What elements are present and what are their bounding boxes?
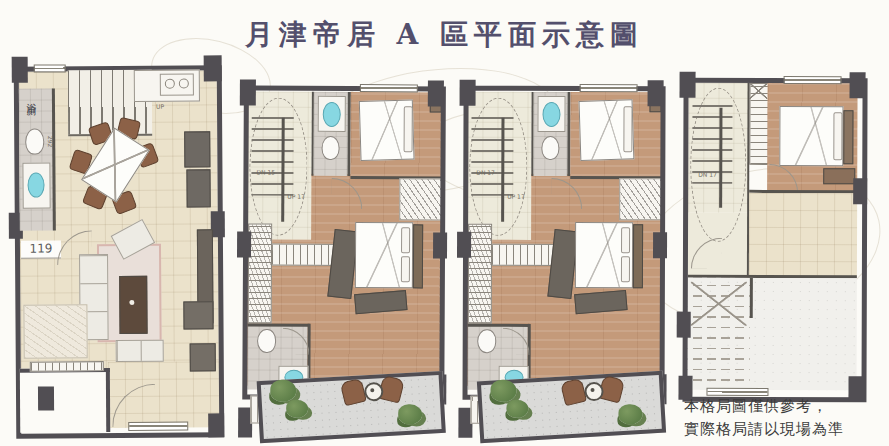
- page-title: 月津帝居 A 區平面示意圖: [0, 16, 889, 54]
- wall-column: [38, 386, 54, 410]
- wall-column: [237, 231, 251, 257]
- ottoman-bench: [116, 340, 164, 362]
- window: [360, 84, 418, 92]
- disclaimer-note: 本格局圖僅供參考， 實際格局請以現場為準: [684, 395, 844, 442]
- wall-column: [648, 80, 664, 106]
- wall-column: [208, 413, 224, 437]
- shrub: [506, 400, 528, 418]
- outer-wall: [242, 85, 446, 400]
- patio-table-dot: [370, 388, 374, 392]
- wall-column: [240, 79, 256, 105]
- patio-table: [364, 382, 383, 401]
- shrub: [398, 404, 422, 424]
- floor-plan-sheet: 月津帝居 A 區平面示意圖 UP 浴廁 292 119: [0, 0, 889, 446]
- patio-table: [585, 382, 604, 401]
- window: [784, 76, 842, 84]
- disclaimer-line1: 本格局圖僅供參考，: [684, 395, 844, 418]
- kitchen-cabinet: [186, 169, 210, 207]
- shoe-cabinet: [30, 361, 104, 372]
- floor1-porch: [20, 368, 110, 433]
- coffee-table-dot: [129, 300, 134, 305]
- sink: [27, 173, 44, 198]
- stair-direction-label: UP: [156, 104, 164, 110]
- coffee-table: [119, 276, 147, 334]
- wall-column: [12, 57, 28, 83]
- disclaimer-line2: 實際格局請以現場為準: [684, 418, 844, 441]
- stove-burner: [179, 79, 189, 89]
- refrigerator: [184, 131, 210, 167]
- wall-column: [850, 72, 866, 98]
- unit-number-label: 119: [21, 240, 61, 258]
- floor-plan-3: DN 17 UP 17: [462, 74, 665, 443]
- floor-plan-4: DN 17: [682, 68, 887, 423]
- floor-plan-2: DN 15 UP 17: [242, 73, 446, 442]
- shrub: [618, 404, 642, 424]
- bathroom: [19, 88, 54, 230]
- window: [128, 422, 188, 431]
- wall-column: [653, 232, 667, 258]
- wall-column: [680, 72, 696, 98]
- bathroom-label: 浴廁: [26, 95, 36, 99]
- outer-wall: [463, 86, 666, 401]
- floor-mat: [23, 304, 87, 358]
- window: [580, 84, 638, 92]
- shrub: [270, 380, 296, 402]
- shrub: [286, 400, 308, 418]
- side-cabinet: [190, 343, 216, 371]
- outer-wall: [682, 78, 867, 403]
- shrub: [490, 380, 516, 402]
- window: [34, 64, 66, 72]
- wall-column: [433, 232, 447, 258]
- wall-column: [853, 178, 867, 204]
- patio-table-dot: [591, 388, 595, 392]
- floor-plan-1: UP 浴廁 292 119: [14, 61, 229, 438]
- wall-column: [677, 312, 691, 338]
- wall-column: [460, 80, 476, 106]
- stove-burner: [165, 79, 175, 89]
- side-cabinet: [183, 301, 213, 329]
- dimension-label: 292: [47, 136, 53, 147]
- wall-column: [204, 55, 222, 81]
- wall-column: [457, 232, 471, 258]
- toilet: [25, 129, 44, 155]
- wall-column: [428, 80, 444, 106]
- wall-column: [848, 376, 864, 400]
